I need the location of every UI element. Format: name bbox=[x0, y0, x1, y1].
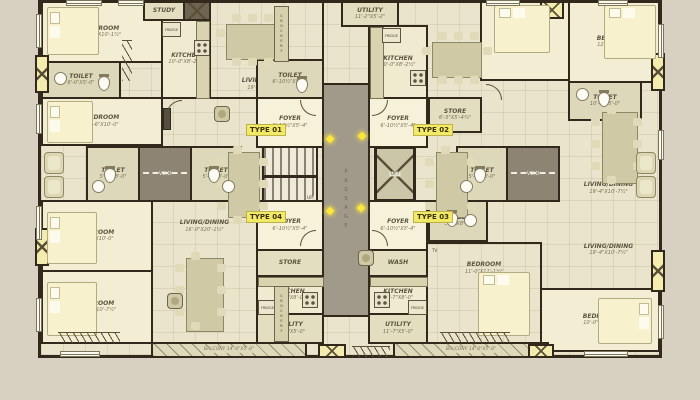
double-bed bbox=[47, 101, 93, 143]
double-bed bbox=[494, 5, 550, 53]
room-label: UTILITY bbox=[385, 322, 411, 329]
room-dims: 11'-2"X5'-2" bbox=[355, 14, 385, 20]
armchair bbox=[636, 152, 656, 174]
plant-pot bbox=[167, 293, 183, 309]
room-label: FOYER bbox=[279, 116, 301, 123]
crockery-cabinet: CROCKERY bbox=[274, 6, 289, 62]
room-study-t1: STUDY bbox=[143, 1, 185, 21]
floor-plan: BEDROOM 10'-0"X10'-1½" TOILET 8'-0"X5'-0… bbox=[0, 0, 700, 400]
duct-shaft-dark bbox=[183, 1, 211, 21]
double-bed bbox=[47, 7, 99, 55]
window bbox=[36, 206, 42, 240]
room-label: UTILITY bbox=[357, 8, 383, 15]
void-shaft-right: VOID bbox=[506, 146, 560, 202]
window bbox=[66, 0, 102, 6]
room-dims: 6'-5"X5'-4¼" bbox=[439, 115, 471, 121]
washbasin bbox=[460, 180, 473, 193]
duct-shaft bbox=[651, 250, 665, 292]
room-toilet-t1b: TOILET 6'-10½"X5'-4" bbox=[256, 59, 324, 99]
room-label: STUDY bbox=[153, 8, 175, 15]
washbasin bbox=[464, 214, 477, 227]
double-bed bbox=[47, 212, 97, 264]
room-dims: 16'-0"X20'-1½" bbox=[185, 227, 223, 233]
stove bbox=[302, 292, 318, 308]
window bbox=[36, 14, 42, 48]
kitchen-counter bbox=[196, 21, 210, 99]
kitchen-counter bbox=[370, 277, 428, 287]
kitchen-counter bbox=[258, 277, 324, 287]
tv-label: TV bbox=[432, 248, 437, 253]
room-label: TOILET bbox=[69, 74, 92, 81]
washbasin bbox=[54, 72, 67, 85]
stove bbox=[194, 40, 210, 56]
window bbox=[60, 351, 100, 357]
room-label: LIVING/DINING bbox=[180, 220, 229, 227]
room-dims: 6'-10½"X5'-4" bbox=[380, 226, 415, 232]
window bbox=[118, 0, 144, 6]
duct-shaft bbox=[35, 55, 49, 93]
duct-shaft bbox=[528, 344, 554, 358]
room-label: STORE bbox=[279, 260, 301, 267]
stove bbox=[374, 292, 390, 308]
void-label: VOID bbox=[527, 171, 540, 177]
armchair bbox=[44, 176, 64, 198]
window bbox=[658, 130, 664, 160]
room-dims: 10'-0"X8'-2½" bbox=[380, 62, 415, 68]
armchair bbox=[44, 152, 64, 174]
room-dims: 19'-4"X10'-7½" bbox=[589, 250, 627, 256]
room-label: WASH bbox=[388, 260, 408, 267]
room-label: BALCONY 14'-0"X5'-0" bbox=[444, 347, 498, 352]
plant-pot bbox=[214, 106, 230, 122]
room-utility-t4: UTILITY 11'-7"X5'-0" bbox=[256, 313, 324, 344]
balcony-left: BALCONY 14'-0"X5'-0" bbox=[151, 342, 307, 358]
washbasin bbox=[576, 88, 589, 101]
passage-label: PASSAGE bbox=[343, 169, 349, 232]
window bbox=[658, 305, 664, 339]
fridge: FRIDGE bbox=[408, 300, 427, 315]
armchair bbox=[636, 176, 656, 198]
wardrobe bbox=[58, 332, 120, 343]
void-shaft-left: VOID bbox=[138, 146, 192, 202]
washbasin bbox=[222, 180, 235, 193]
washbasin bbox=[92, 180, 105, 193]
room-dims: 8'-0"X5'-0" bbox=[67, 80, 94, 86]
dining-table bbox=[432, 42, 482, 78]
double-bed bbox=[598, 298, 652, 344]
type-label-02: TYPE 02 bbox=[413, 124, 453, 136]
double-bed bbox=[478, 272, 530, 336]
crockery-cabinet: CROCKERY bbox=[274, 286, 289, 342]
window bbox=[658, 24, 664, 58]
window bbox=[36, 298, 42, 332]
window bbox=[36, 104, 42, 134]
room-label: FOYER bbox=[387, 116, 409, 123]
room-wash-t3: WASH bbox=[368, 249, 428, 277]
dining-table bbox=[226, 24, 276, 60]
fridge: FRIDGE bbox=[162, 22, 181, 37]
room-utility-t3: UTILITY 11'-7"X5'-0" bbox=[368, 313, 428, 344]
staircase: UP bbox=[262, 146, 318, 204]
room-label: FOYER bbox=[387, 219, 409, 226]
room-dims: 6'-10½"X5'-4" bbox=[272, 226, 307, 232]
type-label-01: TYPE 01 bbox=[246, 124, 286, 136]
room-label: BALCONY 14'-0"X5'-0" bbox=[202, 347, 256, 352]
double-bed bbox=[604, 5, 656, 59]
room-living-dining-t3: LIVING/DINING 19'-4"X10'-7½" bbox=[558, 228, 659, 272]
room-dims: 19'-4"X10'-7½" bbox=[589, 189, 627, 195]
balcony-right: BALCONY 14'-0"X5'-0" bbox=[393, 342, 549, 358]
stair-landing-divider bbox=[264, 175, 316, 178]
double-bed bbox=[47, 282, 97, 336]
room-dims: 11'-7"X5'-0" bbox=[383, 329, 413, 335]
window bbox=[584, 351, 628, 357]
fridge: FRIDGE bbox=[382, 28, 401, 43]
plant-pot bbox=[358, 250, 374, 266]
type-label-04: TYPE 04 bbox=[246, 211, 286, 223]
window bbox=[486, 0, 520, 6]
wardrobe bbox=[352, 346, 390, 357]
stove bbox=[410, 70, 426, 86]
void-label: VOID bbox=[159, 171, 172, 177]
duct-shaft bbox=[318, 344, 346, 358]
dining-table bbox=[186, 258, 224, 332]
room-utility-t2: UTILITY 11'-2"X5'-2" bbox=[341, 1, 399, 27]
wardrobe bbox=[122, 40, 132, 81]
elevator: LIFT bbox=[374, 146, 416, 202]
dining-table bbox=[602, 112, 638, 184]
room-label: STORE bbox=[444, 109, 466, 116]
type-label-03: TYPE 03 bbox=[413, 211, 453, 223]
passage-corridor: PASSAGE bbox=[322, 83, 370, 317]
room-store-t4: STORE bbox=[256, 249, 324, 277]
wardrobe bbox=[440, 332, 510, 343]
elevator-label: LIFT bbox=[389, 172, 400, 177]
room-dims: 6'-10½"X5'-4" bbox=[380, 123, 415, 129]
window bbox=[598, 0, 628, 6]
room-label: BEDROOM bbox=[467, 262, 501, 269]
